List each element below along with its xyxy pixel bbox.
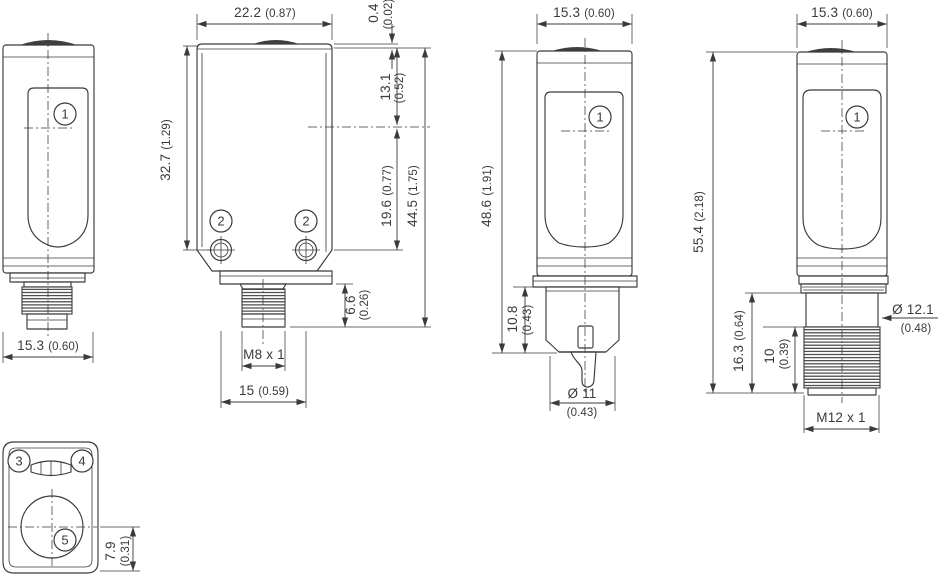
callout-1: 1 <box>846 106 868 128</box>
callout-number: 1 <box>61 107 68 122</box>
connector-stem <box>24 282 71 287</box>
callout-2-left: 2 <box>210 210 232 232</box>
dim-gland-length-in: (0.43) <box>522 305 534 336</box>
dim-total-height-label: 44.5(1.75) <box>405 165 420 227</box>
connector-base <box>220 271 332 284</box>
callout-number: 2 <box>217 214 224 229</box>
sensor-body <box>537 51 632 276</box>
m8-thread <box>22 287 72 314</box>
callout-number: 1 <box>853 110 860 125</box>
view-front-cable: 1 15.3(0.60) 48.6(1.91) 10.8 (0.43) Ø 11… <box>479 5 637 419</box>
dim-top-to-axis-in: (0.52) <box>394 73 406 104</box>
dim-connector-diameter-in: (0.48) <box>901 323 932 335</box>
dim-hole-spacing: 15(0.59) <box>221 331 306 408</box>
view-front-m12: 1 15.3(0.60) 55.4(2.18) 16.3(0.64) 10 (0… <box>691 5 938 433</box>
callout-number: 5 <box>61 533 68 548</box>
dim-thread: M8 x 1 <box>242 331 285 371</box>
drawing-canvas: 1 15.3(0.60) 2 <box>0 0 940 579</box>
dim-gland-length: 10.8 (0.43) <box>505 287 535 353</box>
connector-rings <box>801 284 886 293</box>
dim-connector-length: 6.6 (0.26) <box>336 284 371 327</box>
sensor-top-cap <box>806 48 856 52</box>
dim-height-label: 48.6(1.91) <box>479 165 494 227</box>
callout-3: 3 <box>8 450 30 472</box>
view-face: 3 4 5 7.9 (0.31) <box>3 442 140 573</box>
dim-width-label: 15.3(0.60) <box>553 5 615 20</box>
connector-tip <box>242 314 285 327</box>
dim-axis-to-bottom-mm: 7.9 <box>103 541 118 560</box>
view-side: 2 2 22.2(0.87) 32.7(1.29) <box>158 0 431 408</box>
cable-clip <box>578 326 593 348</box>
dim-thread-length-in: (0.39) <box>779 339 791 370</box>
dim-width: 15.3(0.60) <box>537 5 632 44</box>
dim-lens-offset-in: (0.02) <box>383 0 395 29</box>
thread-label: M8 x 1 <box>243 347 285 362</box>
dim-connector-length-mm: 6.6 <box>343 295 358 314</box>
dim-width: 22.2(0.87) <box>197 5 332 40</box>
connector-base <box>10 273 85 282</box>
sensor-body <box>3 45 94 273</box>
callout-number: 1 <box>596 110 603 125</box>
dim-hole-spacing-label: 15(0.59) <box>239 383 289 398</box>
cable-tail <box>571 352 596 387</box>
dim-height-label: 55.4(2.18) <box>691 191 706 253</box>
dim-body-height-label: 32.7(1.29) <box>158 119 173 181</box>
mounting-hole-right <box>292 236 320 264</box>
dim-width-label: 15.3(0.60) <box>811 5 873 20</box>
dim-axis-to-bottom-in: (0.31) <box>120 536 132 567</box>
sensor-top-cap <box>253 40 299 44</box>
dim-thread: M12 x 1 <box>804 395 879 433</box>
callout-1: 1 <box>54 103 76 125</box>
dim-total-height: 44.5(1.75) <box>290 48 431 327</box>
callout-number: 4 <box>78 454 85 469</box>
callout-4: 4 <box>71 450 93 472</box>
dim-connector-diameter: Ø 12.1 (0.48) <box>882 302 938 335</box>
dimensional-drawing: 1 15.3(0.60) 2 <box>0 0 940 579</box>
dim-connector-length-in: (0.26) <box>359 290 371 321</box>
callout-number: 3 <box>15 454 22 469</box>
m8-thread <box>242 289 285 314</box>
view-front-m8: 1 15.3(0.60) <box>3 33 94 363</box>
callout-number: 2 <box>302 214 309 229</box>
connector-base <box>799 276 888 284</box>
dim-thread-length: 10 (0.39) <box>762 327 804 393</box>
dim-width-label: 15.3(0.60) <box>17 338 79 353</box>
dim-connector-diameter-mm: Ø 12.1 <box>892 302 934 317</box>
callout-5: 5 <box>54 529 76 551</box>
thread-label: M12 x 1 <box>816 410 865 425</box>
dim-top-to-axis-mm: 13.1 <box>378 73 393 100</box>
dim-axis-to-hole-label: 19.6(0.77) <box>379 165 394 227</box>
connector-tip <box>27 314 67 329</box>
sensor-top-cap <box>552 47 602 51</box>
dim-width-label: 22.2(0.87) <box>234 5 296 20</box>
callout-2-right: 2 <box>295 210 317 232</box>
dim-cable-diameter-in: (0.43) <box>567 407 598 419</box>
dim-cable-diameter-mm: Ø 11 <box>567 386 596 401</box>
dim-lens-offset-mm: 0.4 <box>366 3 381 23</box>
dim-body-height: 32.7(1.29) <box>158 46 212 250</box>
dim-thread-length-mm: 10 <box>762 348 777 363</box>
sensor-body <box>197 44 332 271</box>
dim-connector-length-label: 16.3(0.64) <box>731 310 746 372</box>
dim-lens-offset: 0.4 (0.02) <box>334 0 431 69</box>
dim-axis-to-hole: 19.6(0.77) <box>334 129 403 250</box>
callout-1: 1 <box>589 106 611 128</box>
dim-gland-length-mm: 10.8 <box>505 305 520 332</box>
dim-width: 15.3(0.60) <box>3 332 93 363</box>
sensor-top-cap <box>20 40 77 45</box>
dim-axis-to-bottom: 7.9 (0.31) <box>100 527 140 571</box>
